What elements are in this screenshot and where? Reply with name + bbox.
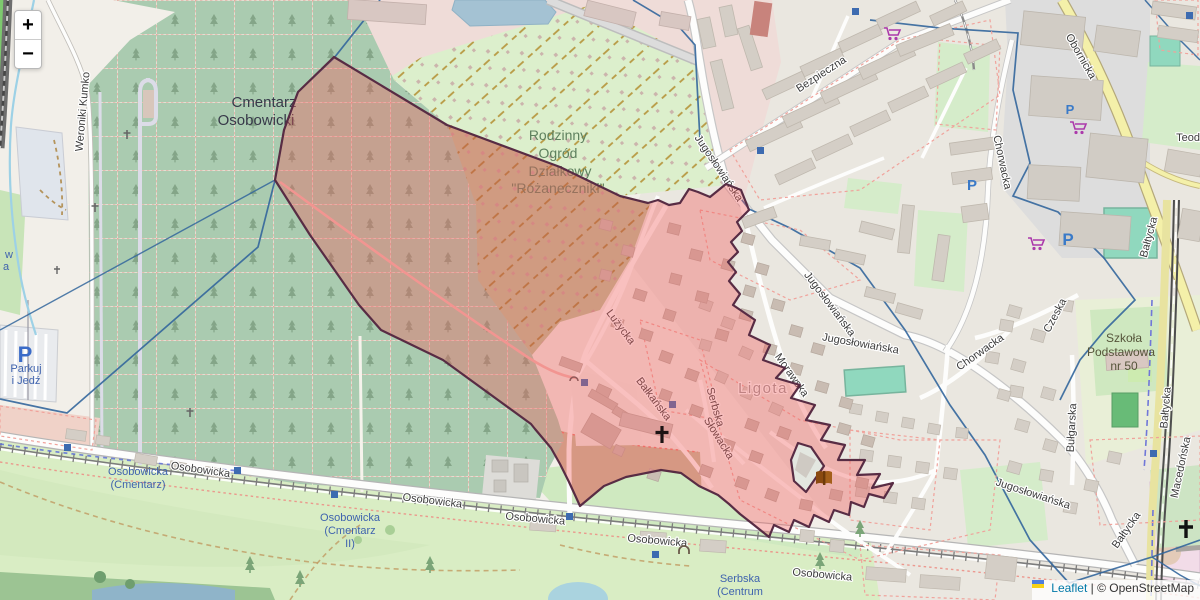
svg-text:Podstawowa: Podstawowa xyxy=(1087,345,1155,359)
svg-text:P: P xyxy=(1066,102,1075,117)
svg-text:Osobowicka: Osobowicka xyxy=(320,512,381,524)
svg-text:Ogród: Ogród xyxy=(539,145,578,161)
svg-text:II): II) xyxy=(345,538,355,550)
svg-text:a: a xyxy=(3,261,10,273)
svg-text:i Jedź: i Jedź xyxy=(12,375,41,387)
svg-text:Szkoła: Szkoła xyxy=(1106,331,1142,345)
svg-text:Rodzinny: Rodzinny xyxy=(529,127,587,143)
svg-text:Teodor: Teodor xyxy=(1176,132,1200,144)
svg-text:Osobowicki: Osobowicki xyxy=(218,112,295,129)
svg-text:P: P xyxy=(1062,230,1073,249)
svg-text:(Centrum: (Centrum xyxy=(717,586,763,598)
svg-text:Osobowicka: Osobowicka xyxy=(108,466,169,478)
svg-text:Cmentarz: Cmentarz xyxy=(231,94,296,111)
svg-text:(Cmentarz: (Cmentarz xyxy=(324,525,375,537)
svg-text:Serbska: Serbska xyxy=(720,573,761,585)
svg-text:w: w xyxy=(4,249,13,261)
svg-text:P: P xyxy=(967,177,977,194)
svg-text:(Cmentarz): (Cmentarz) xyxy=(110,479,165,491)
svg-text:Parkuj: Parkuj xyxy=(10,363,41,375)
svg-text:nr 50: nr 50 xyxy=(1110,359,1138,373)
